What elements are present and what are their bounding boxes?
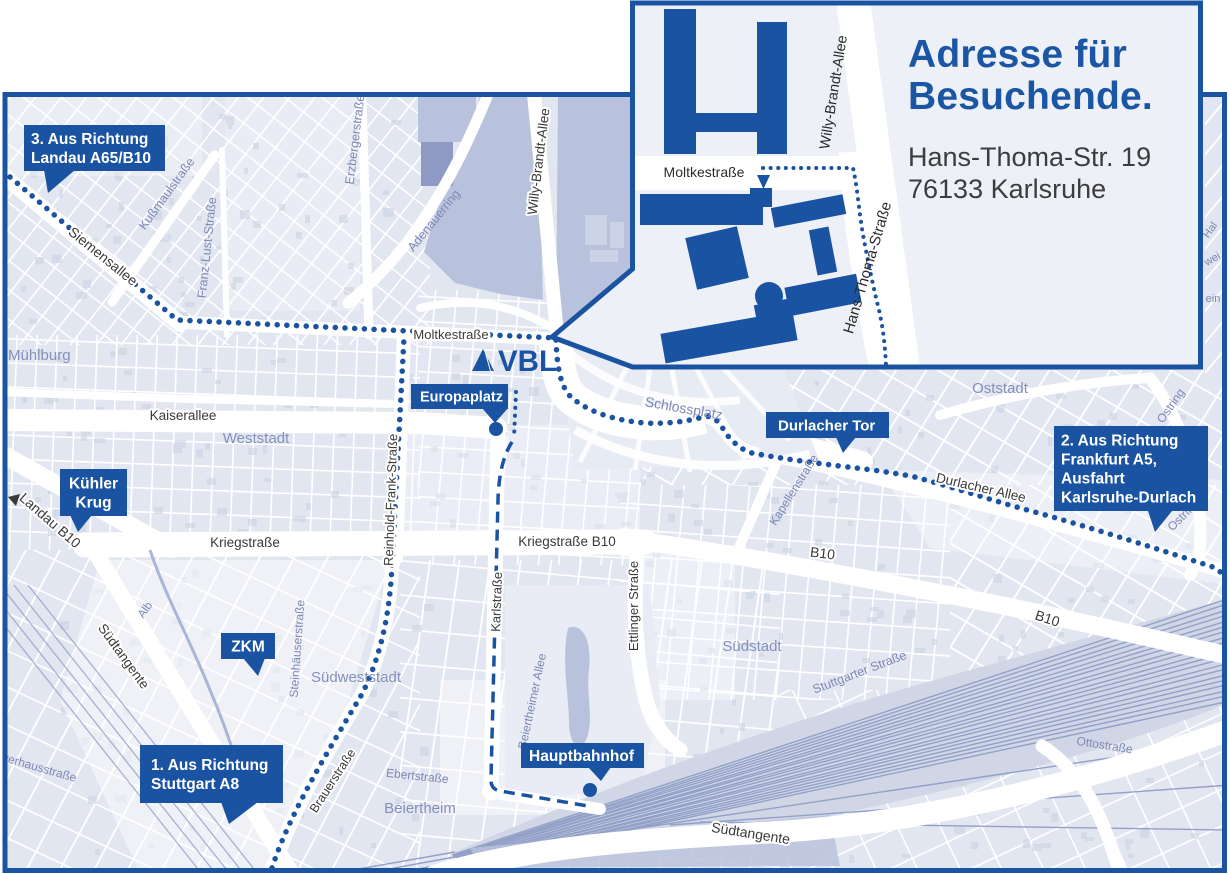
svg-text:Durlacher Tor: Durlacher Tor bbox=[778, 417, 875, 434]
svg-text:1. Aus Richtung: 1. Aus Richtung bbox=[151, 757, 268, 774]
svg-text:Hans-Thoma-Str. 19: Hans-Thoma-Str. 19 bbox=[908, 142, 1151, 172]
svg-text:Beiertheim: Beiertheim bbox=[384, 800, 456, 817]
svg-text:ein: ein bbox=[1206, 293, 1221, 305]
svg-text:Kriegstraße: Kriegstraße bbox=[210, 535, 280, 550]
svg-text:ZKM: ZKM bbox=[231, 639, 265, 656]
svg-text:Kühler: Kühler bbox=[69, 476, 118, 493]
svg-text:Mühlburg: Mühlburg bbox=[8, 347, 71, 364]
svg-text:Karlstraße: Karlstraße bbox=[488, 572, 505, 632]
svg-text:Kaiserallee: Kaiserallee bbox=[150, 408, 217, 423]
svg-text:Stuttgart A8: Stuttgart A8 bbox=[151, 776, 239, 793]
svg-text:Ausfahrt: Ausfahrt bbox=[1061, 471, 1125, 488]
svg-text:VBL: VBL bbox=[498, 345, 557, 378]
svg-text:Karlsruhe-Durlach: Karlsruhe-Durlach bbox=[1061, 490, 1196, 507]
svg-text:Hauptbahnhof: Hauptbahnhof bbox=[529, 748, 635, 765]
svg-text:Weststadt: Weststadt bbox=[223, 430, 290, 447]
svg-text:Südstadt: Südstadt bbox=[722, 638, 782, 655]
svg-text:2. Aus Richtung: 2. Aus Richtung bbox=[1061, 433, 1178, 450]
svg-text:Südweststadt: Südweststadt bbox=[311, 669, 402, 686]
svg-text:Krug: Krug bbox=[75, 495, 111, 512]
svg-text:Landau A65/B10: Landau A65/B10 bbox=[31, 150, 151, 167]
svg-text:Moltkestraße: Moltkestraße bbox=[664, 164, 745, 180]
svg-text:Europaplatz: Europaplatz bbox=[420, 390, 503, 406]
svg-text:Moltkestraße: Moltkestraße bbox=[413, 327, 488, 342]
svg-text:3. Aus Richtung: 3. Aus Richtung bbox=[31, 131, 148, 148]
svg-text:76133 Karlsruhe: 76133 Karlsruhe bbox=[908, 174, 1106, 204]
svg-text:Kriegstraße B10: Kriegstraße B10 bbox=[518, 534, 616, 549]
svg-text:B10: B10 bbox=[809, 544, 836, 563]
svg-text:Besuchende.: Besuchende. bbox=[908, 75, 1153, 118]
svg-text:Ettlinger Straße: Ettlinger Straße bbox=[626, 561, 641, 651]
svg-text:Adresse für: Adresse für bbox=[908, 33, 1127, 76]
svg-text:Oststadt: Oststadt bbox=[972, 380, 1029, 397]
svg-text:Frankfurt A5,: Frankfurt A5, bbox=[1061, 452, 1157, 469]
